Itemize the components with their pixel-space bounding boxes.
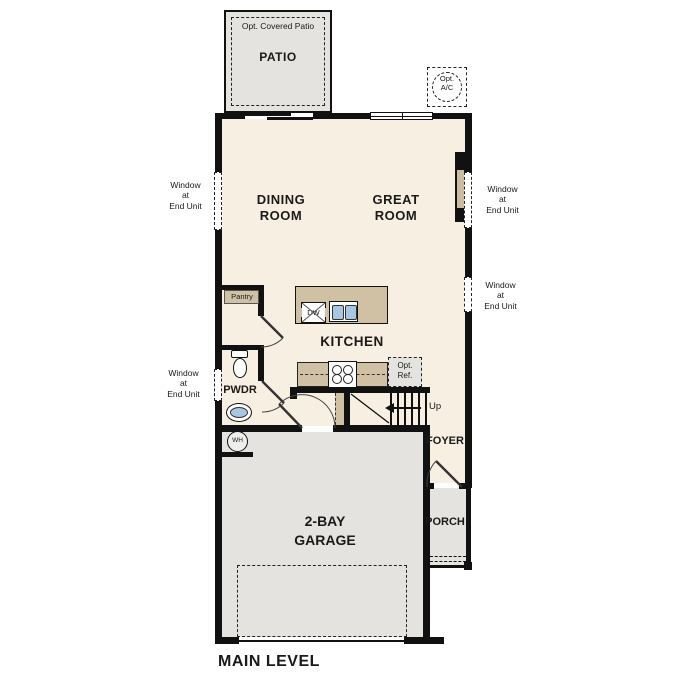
fireplace-insert: [457, 170, 464, 208]
wall-garage-bottom-left: [215, 637, 239, 644]
stair-up-label: Up: [429, 401, 449, 413]
kitchen-label: KITCHEN: [312, 334, 392, 350]
patio-slider-panel-1: [245, 112, 291, 116]
toilet-tank: [231, 350, 248, 358]
window-great-top: [370, 112, 433, 120]
foyer-label: FOYER: [423, 435, 467, 448]
pantry-label: Pantry: [221, 292, 263, 301]
garage-label: 2-BAY GARAGE: [275, 512, 375, 550]
wall-wh-nook: [222, 452, 253, 457]
porch-step-line-1: [430, 556, 466, 557]
cabinet-return: [335, 393, 344, 425]
dining-room-label: DINING ROOM: [240, 192, 322, 224]
porch-corner-cap: [464, 562, 472, 570]
stair-tread: [411, 393, 413, 425]
toilet-bowl: [233, 358, 247, 378]
wall-pwdr-right: [258, 350, 264, 381]
stair-tread: [397, 393, 399, 425]
wall-garage-bottom-right: [404, 637, 444, 644]
garage-door-outline: [237, 565, 407, 637]
wall-foyer-front-left: [423, 483, 434, 489]
opt-covered-patio-label: Opt. Covered Patio: [232, 21, 324, 31]
floor-plan: Opt. Covered Patio PATIO Opt. A/C Window…: [0, 0, 687, 687]
garage-door-threshold: [239, 640, 404, 642]
porch-step-edge: [430, 565, 466, 568]
opt-ac-label: Opt. A/C: [429, 75, 465, 92]
stair-tread: [404, 393, 406, 425]
sink-basin-right: [345, 305, 357, 320]
pwdr-sink-basin: [230, 407, 248, 418]
sink-basin-left: [332, 305, 344, 320]
stair-tread-last: [425, 393, 427, 425]
dishwasher-label: DW: [301, 308, 326, 317]
patio-slider-panel-2: [267, 117, 313, 121]
stair-up-arrow-shaft: [393, 407, 421, 409]
wall-hall-stub: [290, 387, 297, 399]
water-heater-label: WH: [227, 437, 248, 445]
window-note-great: Window at End Unit: [474, 184, 531, 215]
porch-label: PORCH: [420, 516, 470, 529]
porch-step-line-2: [430, 561, 466, 562]
wall-garage-divider-right: [333, 425, 430, 432]
plan-title: MAIN LEVEL: [218, 652, 388, 672]
window-kitchen-right: [464, 277, 472, 312]
stair-up-arrow-head: [385, 403, 394, 413]
wall-foyer-front-right: [459, 483, 471, 489]
window-note-kitchen: Window at End Unit: [472, 280, 529, 311]
stair-tread: [418, 393, 420, 425]
window-dining-left: [214, 172, 222, 230]
window-note-pwdr: Window at End Unit: [154, 368, 213, 399]
great-room-label: GREAT ROOM: [355, 192, 437, 224]
wall-stair-left: [344, 393, 350, 425]
window-great-right: [464, 172, 472, 228]
window-note-dining: Window at End Unit: [157, 180, 214, 211]
patio-label: PATIO: [244, 50, 312, 65]
stove: [328, 361, 357, 388]
opt-ref-label: Opt. Ref.: [389, 361, 421, 381]
pwdr-label: PWDR: [218, 384, 262, 397]
wall-garage-right: [423, 425, 430, 644]
